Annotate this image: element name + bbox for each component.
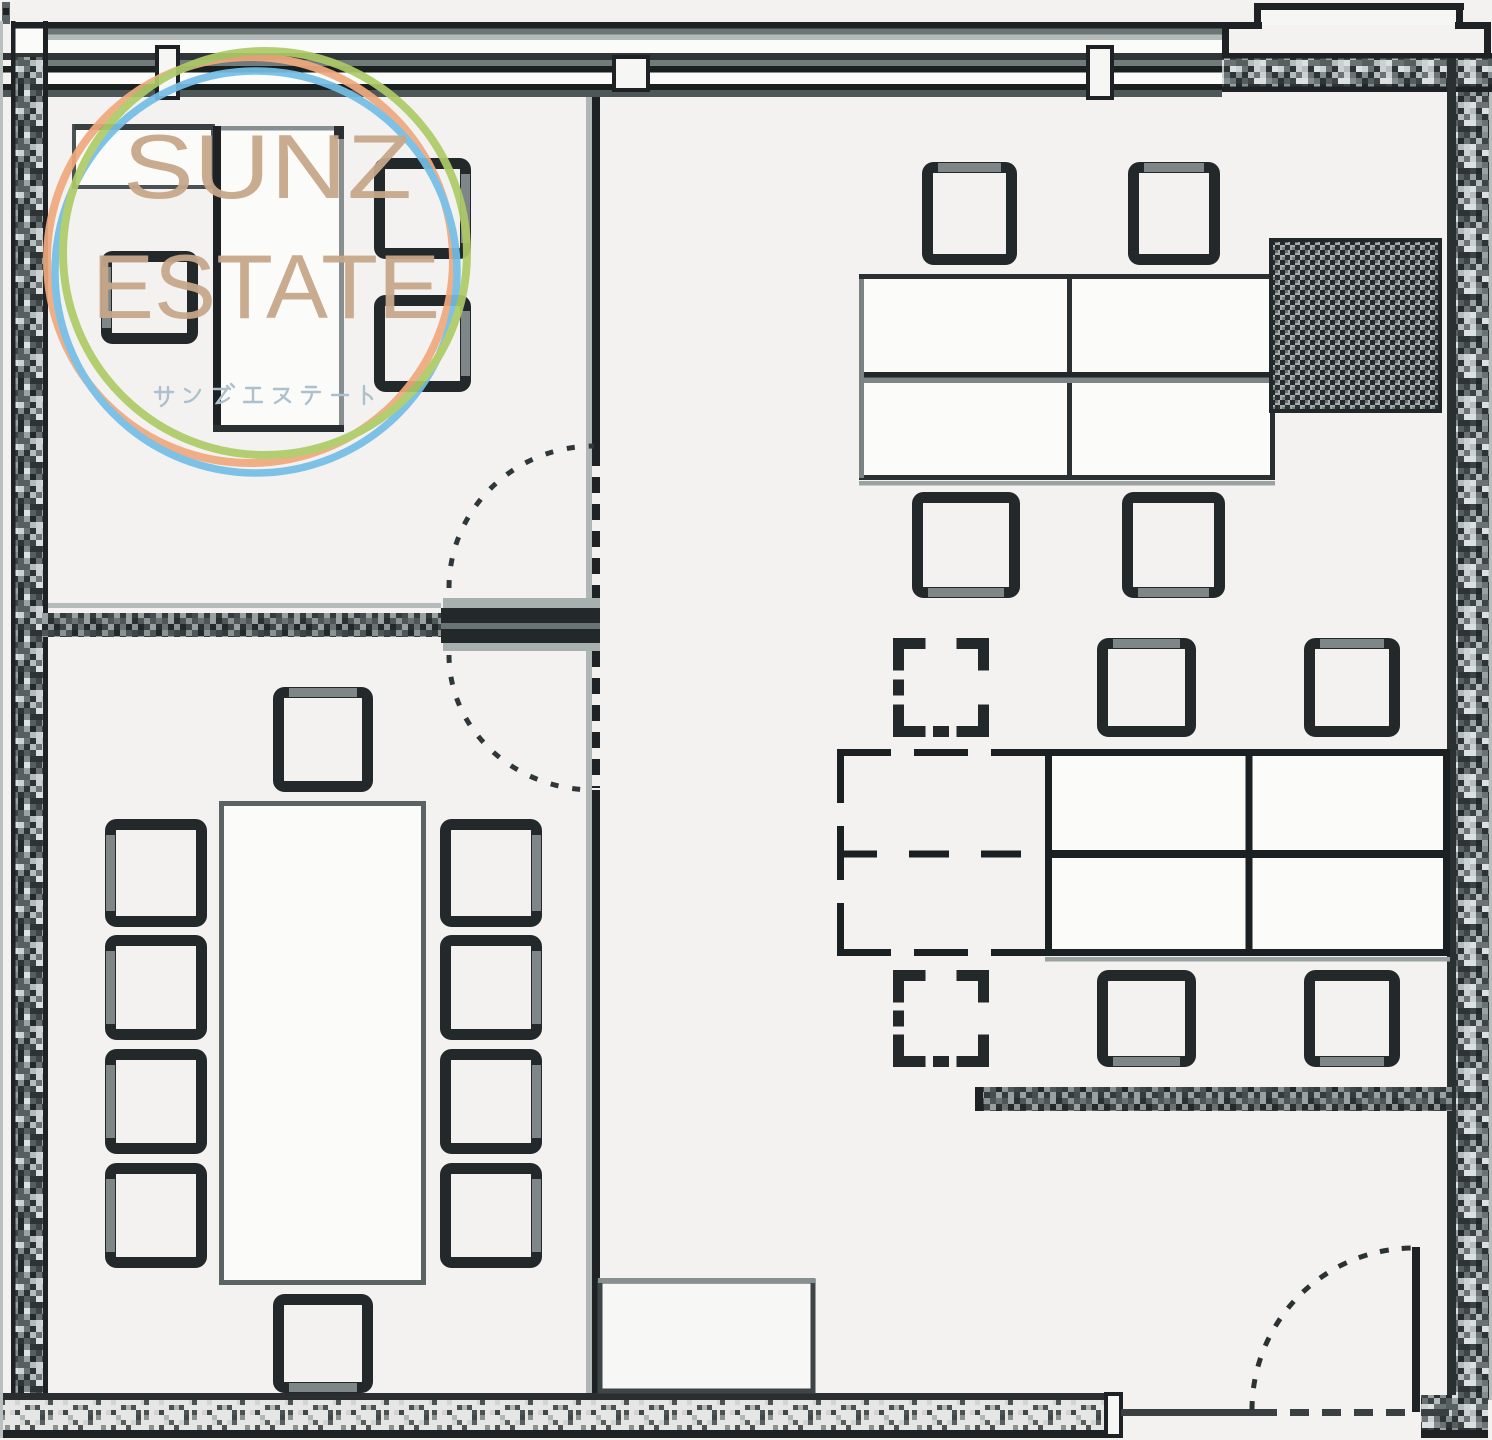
svg-text:ESTATE: ESTATE xyxy=(92,237,440,338)
svg-text:SUNZ: SUNZ xyxy=(123,117,412,218)
